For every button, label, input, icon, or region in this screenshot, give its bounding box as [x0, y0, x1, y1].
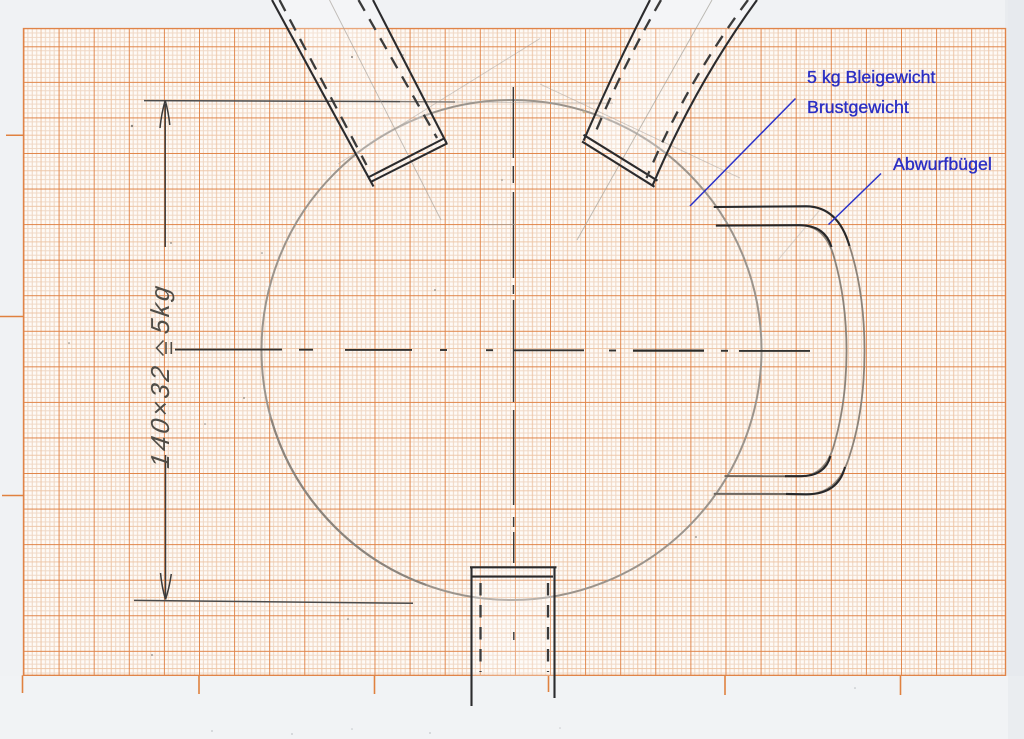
svg-text:5kg: 5kg — [145, 281, 175, 335]
svg-text:Abwurfbügel: Abwurfbügel — [893, 154, 992, 174]
svg-text:Brustgewicht: Brustgewicht — [807, 97, 909, 117]
svg-text:5 kg Bleigewicht: 5 kg Bleigewicht — [807, 67, 936, 87]
svg-text:140×32: 140×32 — [145, 362, 175, 470]
